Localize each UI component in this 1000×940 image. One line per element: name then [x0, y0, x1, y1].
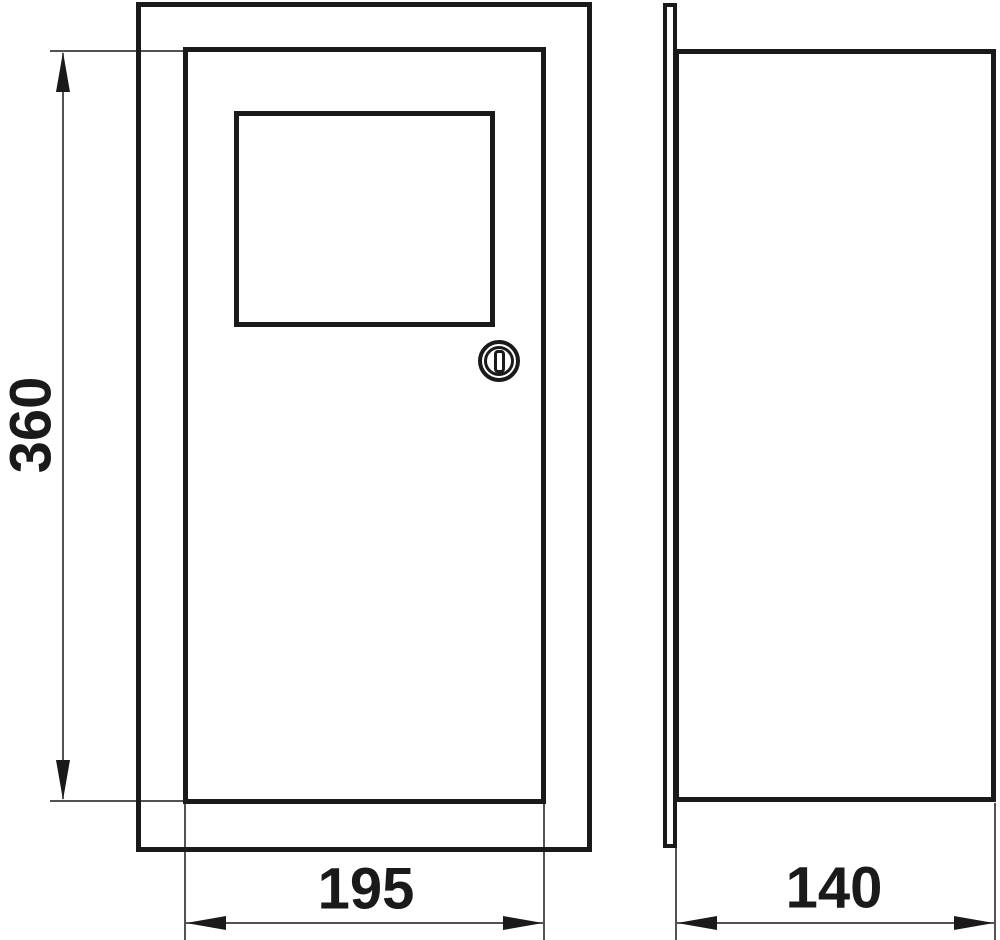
side-view-body	[674, 49, 996, 802]
depth-dimension-label: 140	[786, 855, 883, 922]
technical-drawing: 360 195 140	[0, 0, 1000, 940]
height-arrow-down-icon	[56, 760, 70, 800]
keyhole-slot-icon	[494, 350, 505, 373]
width-arrow-right-icon	[503, 916, 543, 930]
front-view-window	[234, 111, 495, 327]
lock-inner-ring-icon	[484, 346, 514, 376]
depth-arrow-left-icon	[677, 916, 717, 930]
width-dimension-label: 195	[318, 856, 415, 923]
height-arrow-up-icon	[56, 52, 70, 92]
width-arrow-left-icon	[186, 916, 226, 930]
height-dimension-label: 360	[0, 377, 65, 474]
depth-arrow-right-icon	[954, 916, 994, 930]
door-lock-icon	[478, 340, 520, 382]
